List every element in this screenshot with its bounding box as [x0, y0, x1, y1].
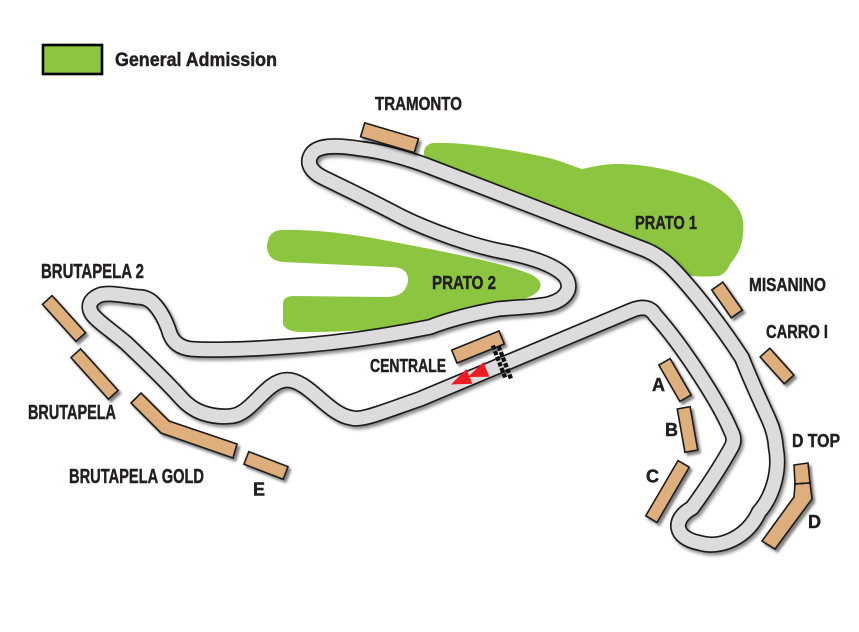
- svg-text:D TOP: D TOP: [792, 431, 840, 451]
- svg-text:BRUTAPELA GOLD: BRUTAPELA GOLD: [69, 466, 204, 488]
- svg-text:A: A: [652, 375, 665, 395]
- svg-text:General Admission: General Admission: [115, 50, 277, 71]
- svg-text:B: B: [665, 420, 678, 440]
- svg-text:E: E: [253, 480, 265, 500]
- svg-text:CENTRALE: CENTRALE: [370, 356, 446, 376]
- svg-text:MISANINO: MISANINO: [749, 275, 826, 295]
- svg-text:BRUTAPELA 2: BRUTAPELA 2: [41, 261, 144, 283]
- svg-text:TRAMONTO: TRAMONTO: [375, 94, 462, 114]
- svg-text:PRATO 2: PRATO 2: [432, 273, 496, 293]
- svg-text:C: C: [646, 467, 659, 487]
- svg-text:D: D: [808, 512, 821, 532]
- svg-text:PRATO 1: PRATO 1: [635, 213, 697, 233]
- svg-text:BRUTAPELA: BRUTAPELA: [28, 402, 116, 424]
- svg-text:CARRO I: CARRO I: [766, 322, 828, 342]
